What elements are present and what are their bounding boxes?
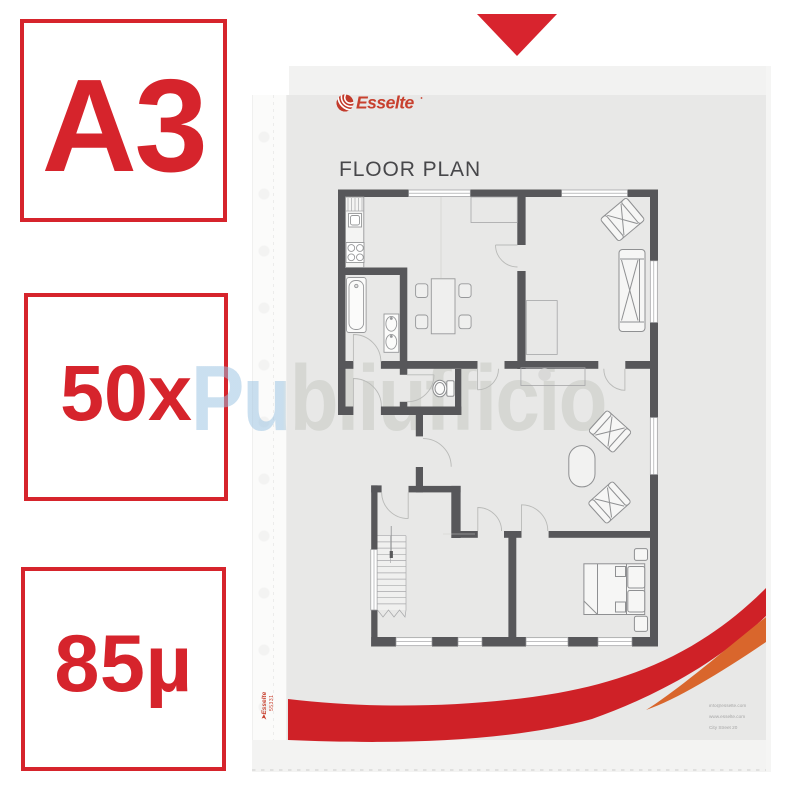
svg-text:Esselte: Esselte	[356, 93, 415, 113]
